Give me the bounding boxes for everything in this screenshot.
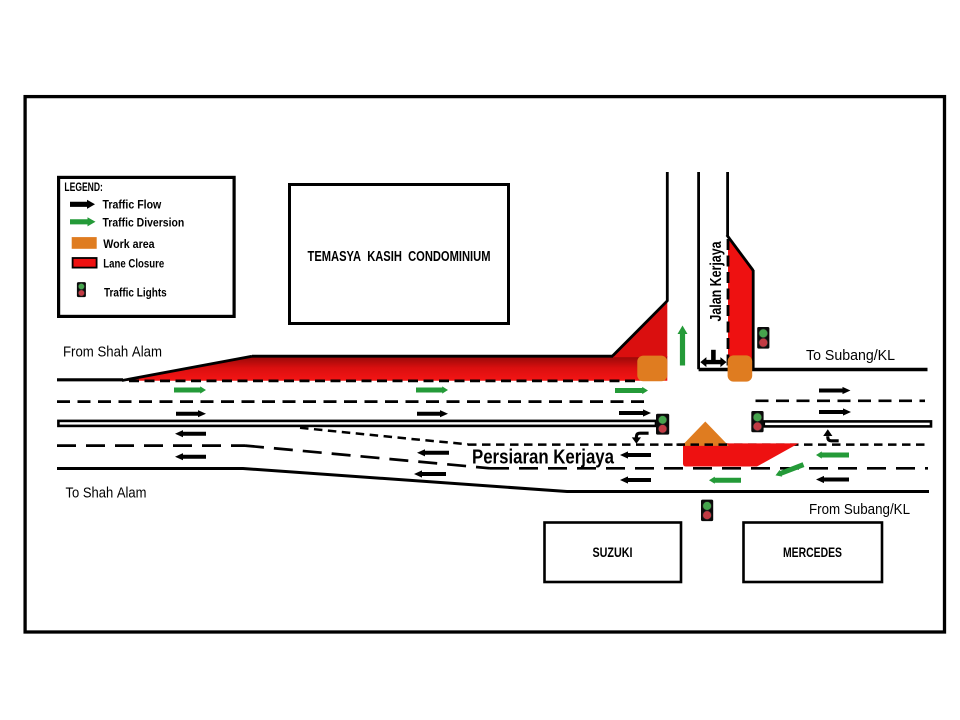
svg-text:Jalan Kerjaya: Jalan Kerjaya (708, 241, 725, 321)
svg-text:From Subang/KL: From Subang/KL (809, 501, 910, 518)
svg-text:LEGEND:: LEGEND: (64, 180, 103, 194)
svg-text:To Shah Alam: To Shah Alam (66, 485, 147, 502)
svg-text:Traffic Diversion: Traffic Diversion (103, 216, 185, 230)
svg-text:Persiaran Kerjaya: Persiaran Kerjaya (472, 446, 615, 468)
svg-text:MERCEDES: MERCEDES (783, 545, 842, 560)
svg-text:Lane Closure: Lane Closure (103, 257, 164, 271)
svg-text:Work area: Work area (103, 237, 154, 251)
svg-text:From Shah Alam: From Shah Alam (63, 344, 162, 361)
svg-text:TEMASYA KASIH CONDOMINIUM: TEMASYA KASIH CONDOMINIUM (308, 249, 491, 265)
svg-text:SUZUKI: SUZUKI (593, 545, 633, 560)
svg-text:Traffic Lights: Traffic Lights (104, 286, 167, 300)
svg-text:Traffic Flow: Traffic Flow (103, 198, 162, 212)
svg-text:To Subang/KL: To Subang/KL (806, 347, 895, 364)
